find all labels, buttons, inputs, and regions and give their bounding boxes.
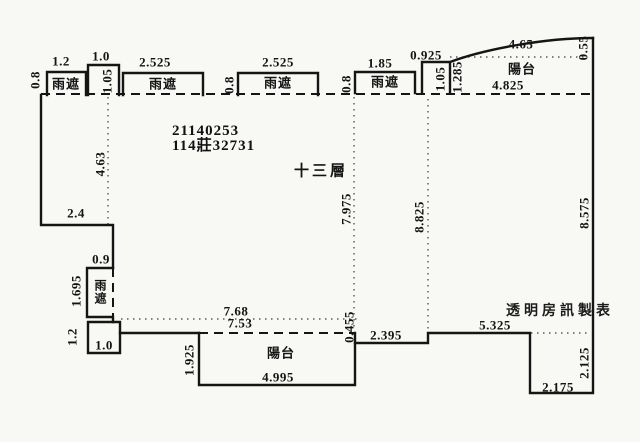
rainshield-label: 雨遮 xyxy=(371,76,399,89)
dim-label: 1.85 xyxy=(368,57,393,70)
dim-label: 1.05 xyxy=(101,69,114,94)
dim-label: 0.55 xyxy=(577,36,590,61)
balcony-label-top-right: 陽台 xyxy=(508,63,536,76)
dim-label: 2.525 xyxy=(262,56,294,69)
balcony-label-bottom: 陽台 xyxy=(267,347,295,360)
dim-label: 0.455 xyxy=(343,311,356,343)
dim-label: 5.325 xyxy=(479,319,511,332)
rainshield-label: 雨遮 xyxy=(149,78,177,91)
floorplan-drawing xyxy=(0,0,640,442)
dim-label: 2.125 xyxy=(578,347,591,379)
dim-label: 1.2 xyxy=(66,328,79,346)
floorplan-sheet: 0.8 1.2 1.0 1.05 2.525 0.8 2.525 0.8 1.8… xyxy=(0,0,640,442)
dim-label: 0.8 xyxy=(29,71,42,89)
dim-label: 0.925 xyxy=(410,49,442,62)
dim-label: 8.825 xyxy=(413,201,426,233)
rainshield-label: 雨遮 xyxy=(52,78,80,91)
dim-label: 1.0 xyxy=(92,50,110,63)
unit-id-block: 21140253 114莊32731 xyxy=(172,124,255,154)
dim-label: 1.0 xyxy=(95,339,113,352)
dim-label: 1.695 xyxy=(70,275,83,307)
watermark-text: 透明房訊製表 xyxy=(506,300,614,320)
dim-label: 7.53 xyxy=(228,317,253,330)
dim-label: 0.8 xyxy=(340,75,353,93)
rainshield-label-vertical: 雨遮 xyxy=(94,279,106,305)
dim-label: 4.65 xyxy=(509,38,534,51)
dim-label: 4.995 xyxy=(262,371,294,384)
dim-label: 1.2 xyxy=(52,55,70,68)
dim-label: 1.05 xyxy=(434,67,447,92)
rainshield-label: 雨遮 xyxy=(264,77,292,90)
dim-label: 1.925 xyxy=(183,344,196,376)
dim-label: 0.9 xyxy=(92,253,110,266)
dim-label: 8.575 xyxy=(578,197,591,229)
dim-label: 2.525 xyxy=(139,56,171,69)
floor-label: 十三層 xyxy=(294,165,348,180)
dim-label: 2.4 xyxy=(67,207,85,220)
dim-label: 0.8 xyxy=(223,76,236,94)
permit-number: 114莊32731 xyxy=(172,139,255,154)
unit-number: 21140253 xyxy=(172,124,255,139)
dim-label: 7.975 xyxy=(340,193,353,225)
dim-label: 2.395 xyxy=(370,329,402,342)
dim-label: 2.175 xyxy=(542,381,574,394)
left-wall-outline xyxy=(41,95,113,268)
dim-label: 1.285 xyxy=(451,61,464,93)
dim-label: 4.825 xyxy=(492,79,524,92)
dim-label: 4.63 xyxy=(94,152,107,177)
